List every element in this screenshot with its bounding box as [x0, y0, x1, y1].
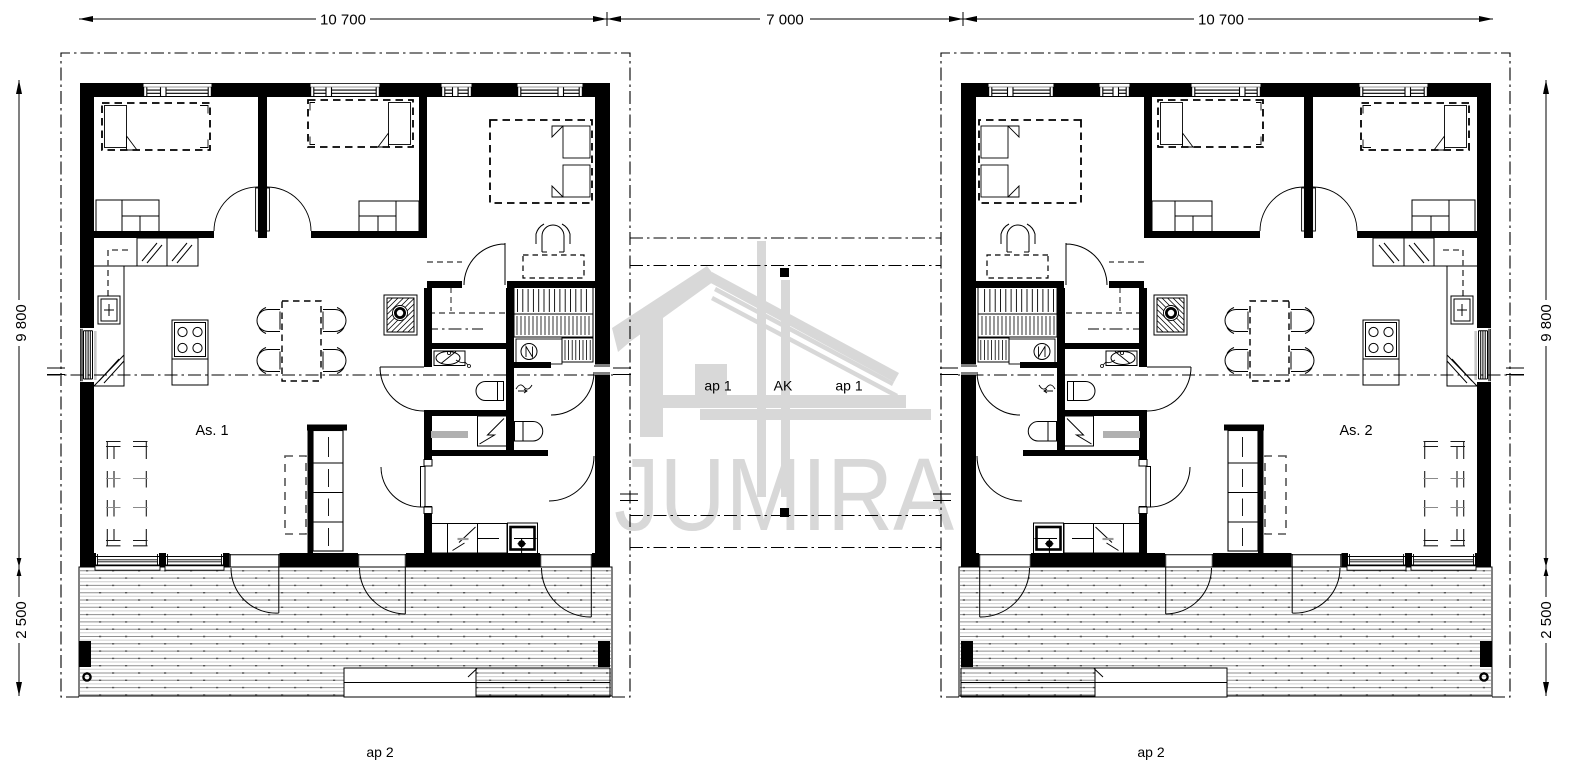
svg-text:ap 1: ap 1: [835, 378, 862, 394]
svg-text:2 500: 2 500: [13, 601, 30, 639]
svg-text:AK: AK: [774, 378, 793, 394]
svg-text:9 800: 9 800: [13, 304, 30, 342]
svg-text:10 700: 10 700: [320, 12, 366, 29]
svg-text:ap 1: ap 1: [704, 378, 731, 394]
svg-text:JUMIRA: JUMIRA: [614, 437, 954, 552]
svg-text:7 000: 7 000: [766, 12, 804, 29]
svg-text:2 500: 2 500: [1538, 601, 1555, 639]
svg-text:10 700: 10 700: [1198, 12, 1244, 29]
svg-text:ap 2: ap 2: [1137, 744, 1164, 760]
svg-text:9 800: 9 800: [1538, 304, 1555, 342]
svg-text:ap 2: ap 2: [366, 744, 393, 760]
svg-text:As. 1: As. 1: [195, 423, 228, 439]
svg-text:As. 2: As. 2: [1339, 423, 1372, 439]
